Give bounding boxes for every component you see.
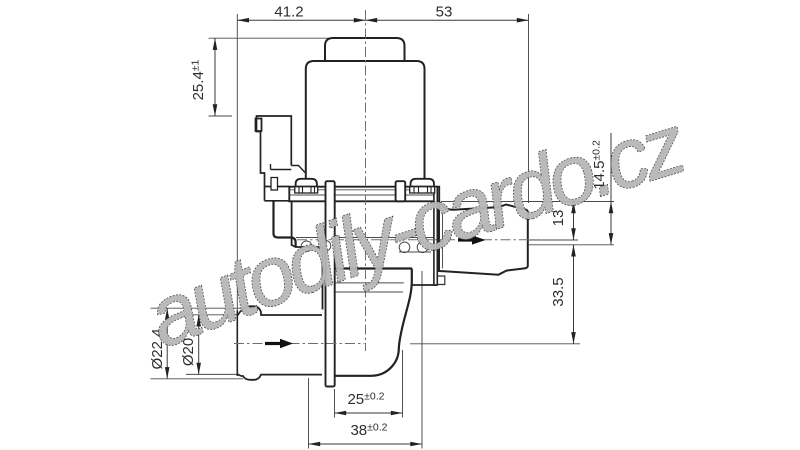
svg-text:41.2: 41.2: [274, 4, 303, 21]
svg-text:33.5: 33.5: [550, 277, 567, 306]
svg-text:53: 53: [436, 4, 453, 21]
